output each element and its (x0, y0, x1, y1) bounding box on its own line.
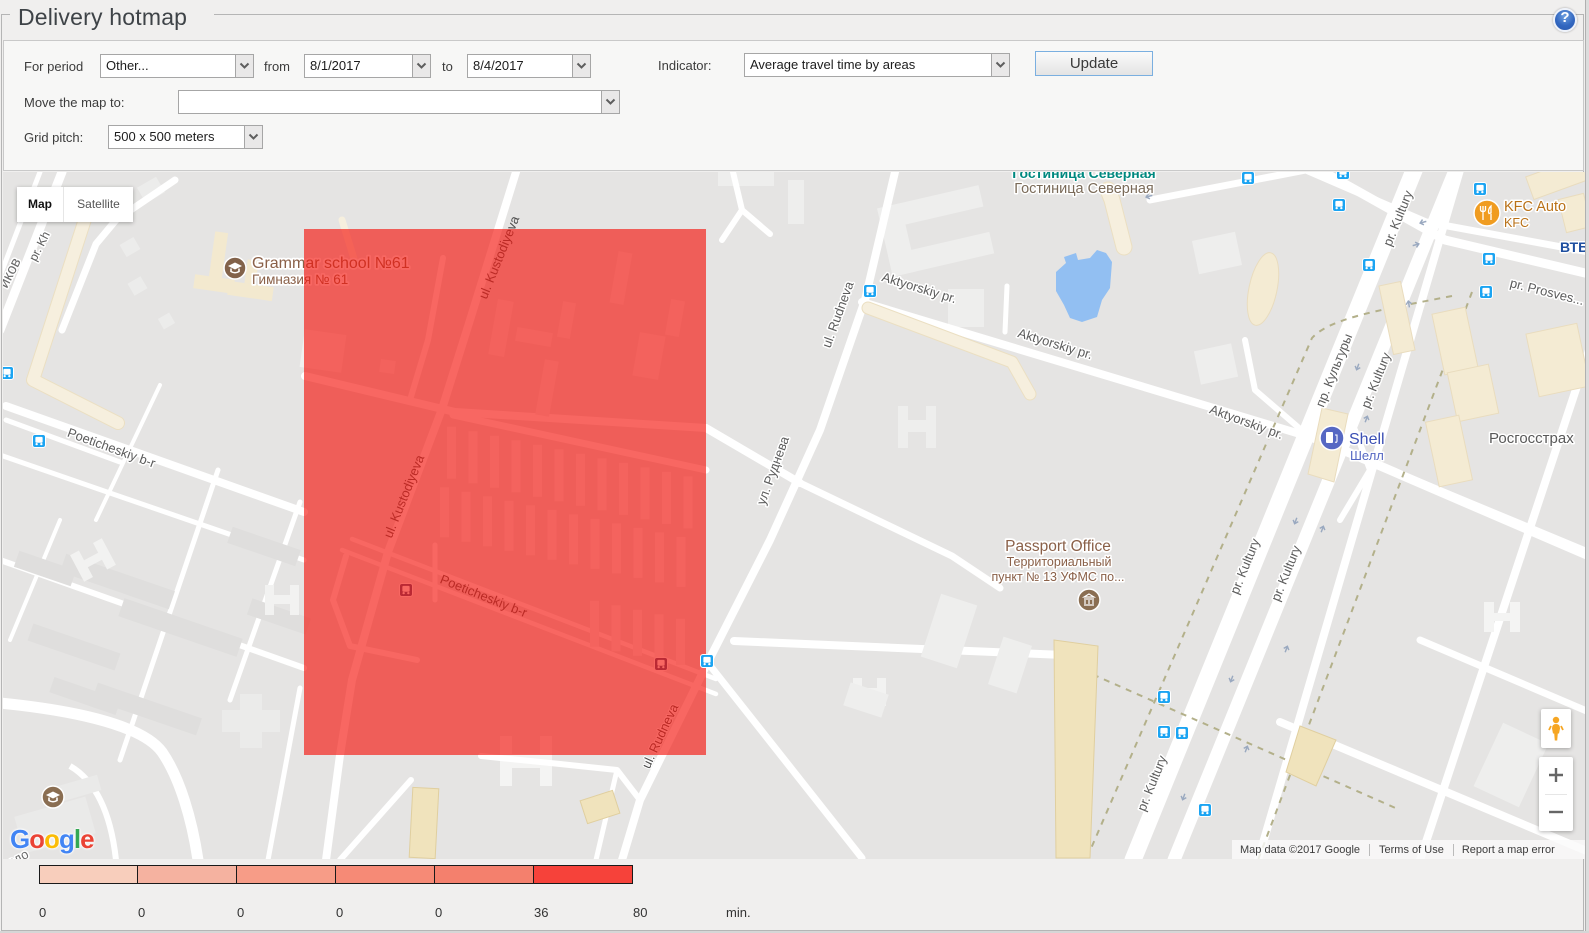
svg-text:Гостиница Северная: Гостиница Северная (1012, 172, 1155, 181)
svg-text:Шелл: Шелл (1350, 448, 1384, 463)
svg-text:Росгосстрах: Росгосстрах (1489, 430, 1574, 447)
svg-text:пункт № 13 УФМС по...: пункт № 13 УФМС по... (991, 570, 1124, 584)
svg-text:Passport Office: Passport Office (1005, 538, 1111, 555)
svg-text:Территориальный: Территориальный (1007, 555, 1112, 569)
svg-text:KFC: KFC (1504, 216, 1529, 230)
svg-text:Shell: Shell (1349, 431, 1385, 448)
svg-text:KFC Auto: KFC Auto (1504, 199, 1566, 215)
svg-text:Гостиница Северная: Гостиница Северная (1014, 181, 1154, 197)
svg-text:ВТБ: ВТБ (1560, 239, 1585, 255)
